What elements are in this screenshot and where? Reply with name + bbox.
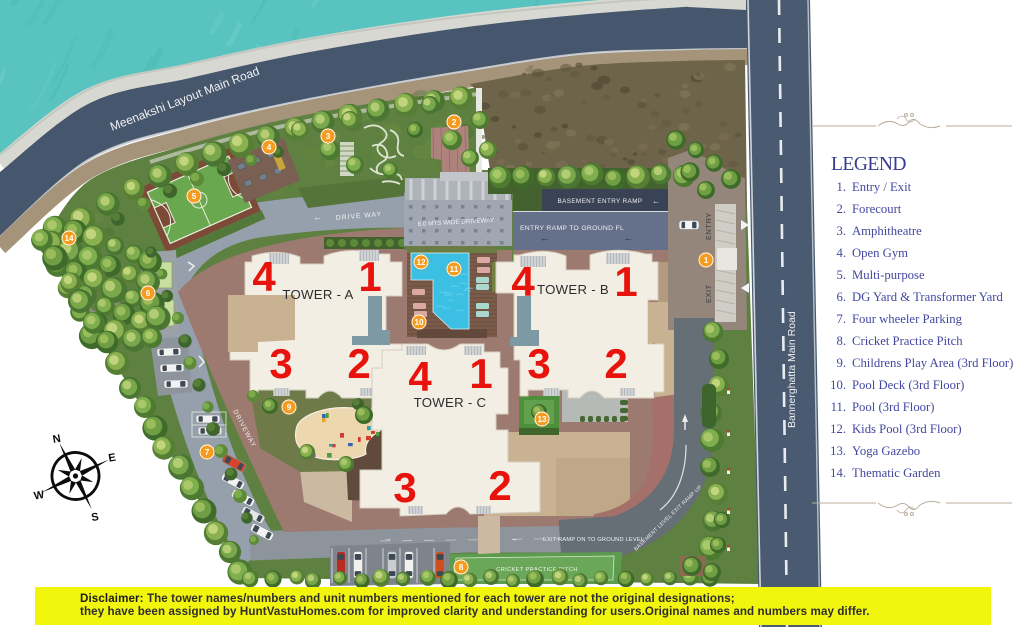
svg-text:1: 1 bbox=[614, 258, 637, 305]
svg-text:Amphitheatre: Amphitheatre bbox=[852, 224, 922, 238]
svg-text:2: 2 bbox=[488, 462, 511, 509]
svg-text:6.: 6. bbox=[836, 290, 846, 304]
svg-text:Open Gym: Open Gym bbox=[852, 246, 908, 260]
svg-text:3: 3 bbox=[527, 340, 550, 387]
svg-text:Forecourt: Forecourt bbox=[852, 202, 902, 216]
svg-text:Entry / Exit: Entry / Exit bbox=[852, 180, 912, 194]
svg-text:BASEMENT ENTRY RAMP: BASEMENT ENTRY RAMP bbox=[558, 198, 643, 205]
svg-text:EXIT RAMP DN TO GROUND LEVEL: EXIT RAMP DN TO GROUND LEVEL bbox=[543, 537, 644, 543]
svg-text:10.: 10. bbox=[830, 378, 846, 392]
svg-text:1.: 1. bbox=[836, 180, 846, 194]
svg-text:5: 5 bbox=[192, 192, 197, 201]
svg-text:8.: 8. bbox=[836, 334, 846, 348]
svg-text:12.: 12. bbox=[830, 422, 846, 436]
svg-text:→: → bbox=[384, 534, 392, 543]
svg-text:4: 4 bbox=[408, 353, 432, 400]
svg-text:EXIT: EXIT bbox=[704, 284, 713, 303]
svg-text:4: 4 bbox=[252, 253, 276, 300]
svg-text:2: 2 bbox=[347, 340, 370, 387]
svg-text:3: 3 bbox=[393, 464, 416, 511]
svg-text:←: ← bbox=[652, 197, 660, 206]
svg-text:4.: 4. bbox=[836, 246, 846, 260]
svg-text:Kids Pool (3rd Floor): Kids Pool (3rd Floor) bbox=[852, 422, 962, 436]
svg-text:9.: 9. bbox=[836, 356, 846, 370]
svg-text:1: 1 bbox=[704, 256, 709, 265]
svg-text:4: 4 bbox=[511, 258, 535, 305]
svg-text:Bannerghatta Main Road: Bannerghatta Main Road bbox=[786, 311, 798, 428]
svg-text:←: ← bbox=[624, 233, 633, 243]
svg-text:Four wheeler Parking: Four wheeler Parking bbox=[852, 312, 963, 326]
svg-text:ENTRY: ENTRY bbox=[704, 212, 713, 240]
svg-text:Yoga Gazebo: Yoga Gazebo bbox=[852, 444, 920, 458]
svg-text:1: 1 bbox=[469, 350, 492, 397]
svg-text:TOWER - B: TOWER - B bbox=[537, 282, 609, 297]
svg-text:14.: 14. bbox=[830, 466, 846, 480]
svg-text:11: 11 bbox=[450, 265, 459, 274]
svg-text:→: → bbox=[510, 534, 518, 543]
svg-text:2: 2 bbox=[452, 118, 457, 127]
svg-text:8: 8 bbox=[459, 563, 464, 572]
svg-text:Thematic Garden: Thematic Garden bbox=[852, 466, 941, 480]
svg-text:Pool Deck (3rd Floor): Pool Deck (3rd Floor) bbox=[852, 378, 964, 392]
svg-text:14: 14 bbox=[64, 234, 74, 243]
svg-text:←: ← bbox=[540, 233, 549, 243]
svg-text:LEGEND: LEGEND bbox=[831, 154, 906, 175]
svg-text:Cricket Practice Pitch: Cricket Practice Pitch bbox=[852, 334, 963, 348]
svg-text:7.: 7. bbox=[836, 312, 846, 326]
svg-text:Multi-purpose: Multi-purpose bbox=[852, 268, 925, 282]
svg-text:3.: 3. bbox=[836, 224, 846, 238]
svg-text:Pool (3rd Floor): Pool (3rd Floor) bbox=[852, 400, 934, 414]
svg-text:3: 3 bbox=[269, 340, 292, 387]
svg-text:6: 6 bbox=[146, 289, 151, 298]
svg-text:4: 4 bbox=[267, 143, 272, 152]
svg-text:Disclaimer: The tower names/nu: Disclaimer: The tower names/numbers and … bbox=[80, 592, 735, 605]
svg-text:DG Yard & Transformer Yard: DG Yard & Transformer Yard bbox=[852, 290, 1004, 304]
svg-text:TOWER - A: TOWER - A bbox=[282, 287, 353, 302]
svg-text:1: 1 bbox=[358, 253, 381, 300]
svg-text:ENTRY RAMP TO GROUND FL: ENTRY RAMP TO GROUND FL bbox=[520, 225, 624, 232]
svg-text:5.: 5. bbox=[836, 268, 846, 282]
svg-text:13.: 13. bbox=[830, 444, 846, 458]
svg-text:11.: 11. bbox=[831, 400, 846, 414]
svg-text:they have been assigned by Hun: they have been assigned by HuntVastuHome… bbox=[80, 605, 870, 618]
svg-text:7: 7 bbox=[205, 448, 210, 457]
svg-text:10: 10 bbox=[414, 318, 424, 327]
svg-text:2: 2 bbox=[604, 340, 627, 387]
svg-text:Childrens Play Area (3rd Floor: Childrens Play Area (3rd Floor) bbox=[852, 356, 1013, 370]
svg-text:9: 9 bbox=[287, 403, 292, 412]
svg-text:3: 3 bbox=[326, 132, 331, 141]
svg-text:13: 13 bbox=[537, 415, 547, 424]
svg-text:←: ← bbox=[313, 212, 322, 222]
svg-text:2.: 2. bbox=[836, 202, 846, 216]
svg-text:12: 12 bbox=[416, 258, 426, 267]
